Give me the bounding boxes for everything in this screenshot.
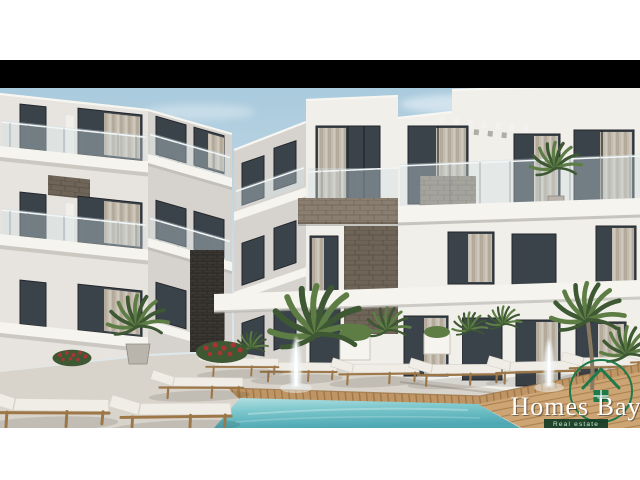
architectural-render: Homes Bay Homes Bay Real estate xyxy=(0,0,640,480)
building-left-near xyxy=(0,94,148,372)
video-frame: Homes Bay Homes Bay Real estate xyxy=(0,0,640,480)
letterbox-bar xyxy=(0,60,640,88)
brand-tagline: Real estate xyxy=(553,421,599,428)
window xyxy=(274,221,296,271)
brand-name: Homes Bay xyxy=(510,392,640,421)
window xyxy=(20,280,46,327)
window xyxy=(242,236,264,286)
building-left-far xyxy=(148,110,232,354)
window xyxy=(512,234,556,286)
